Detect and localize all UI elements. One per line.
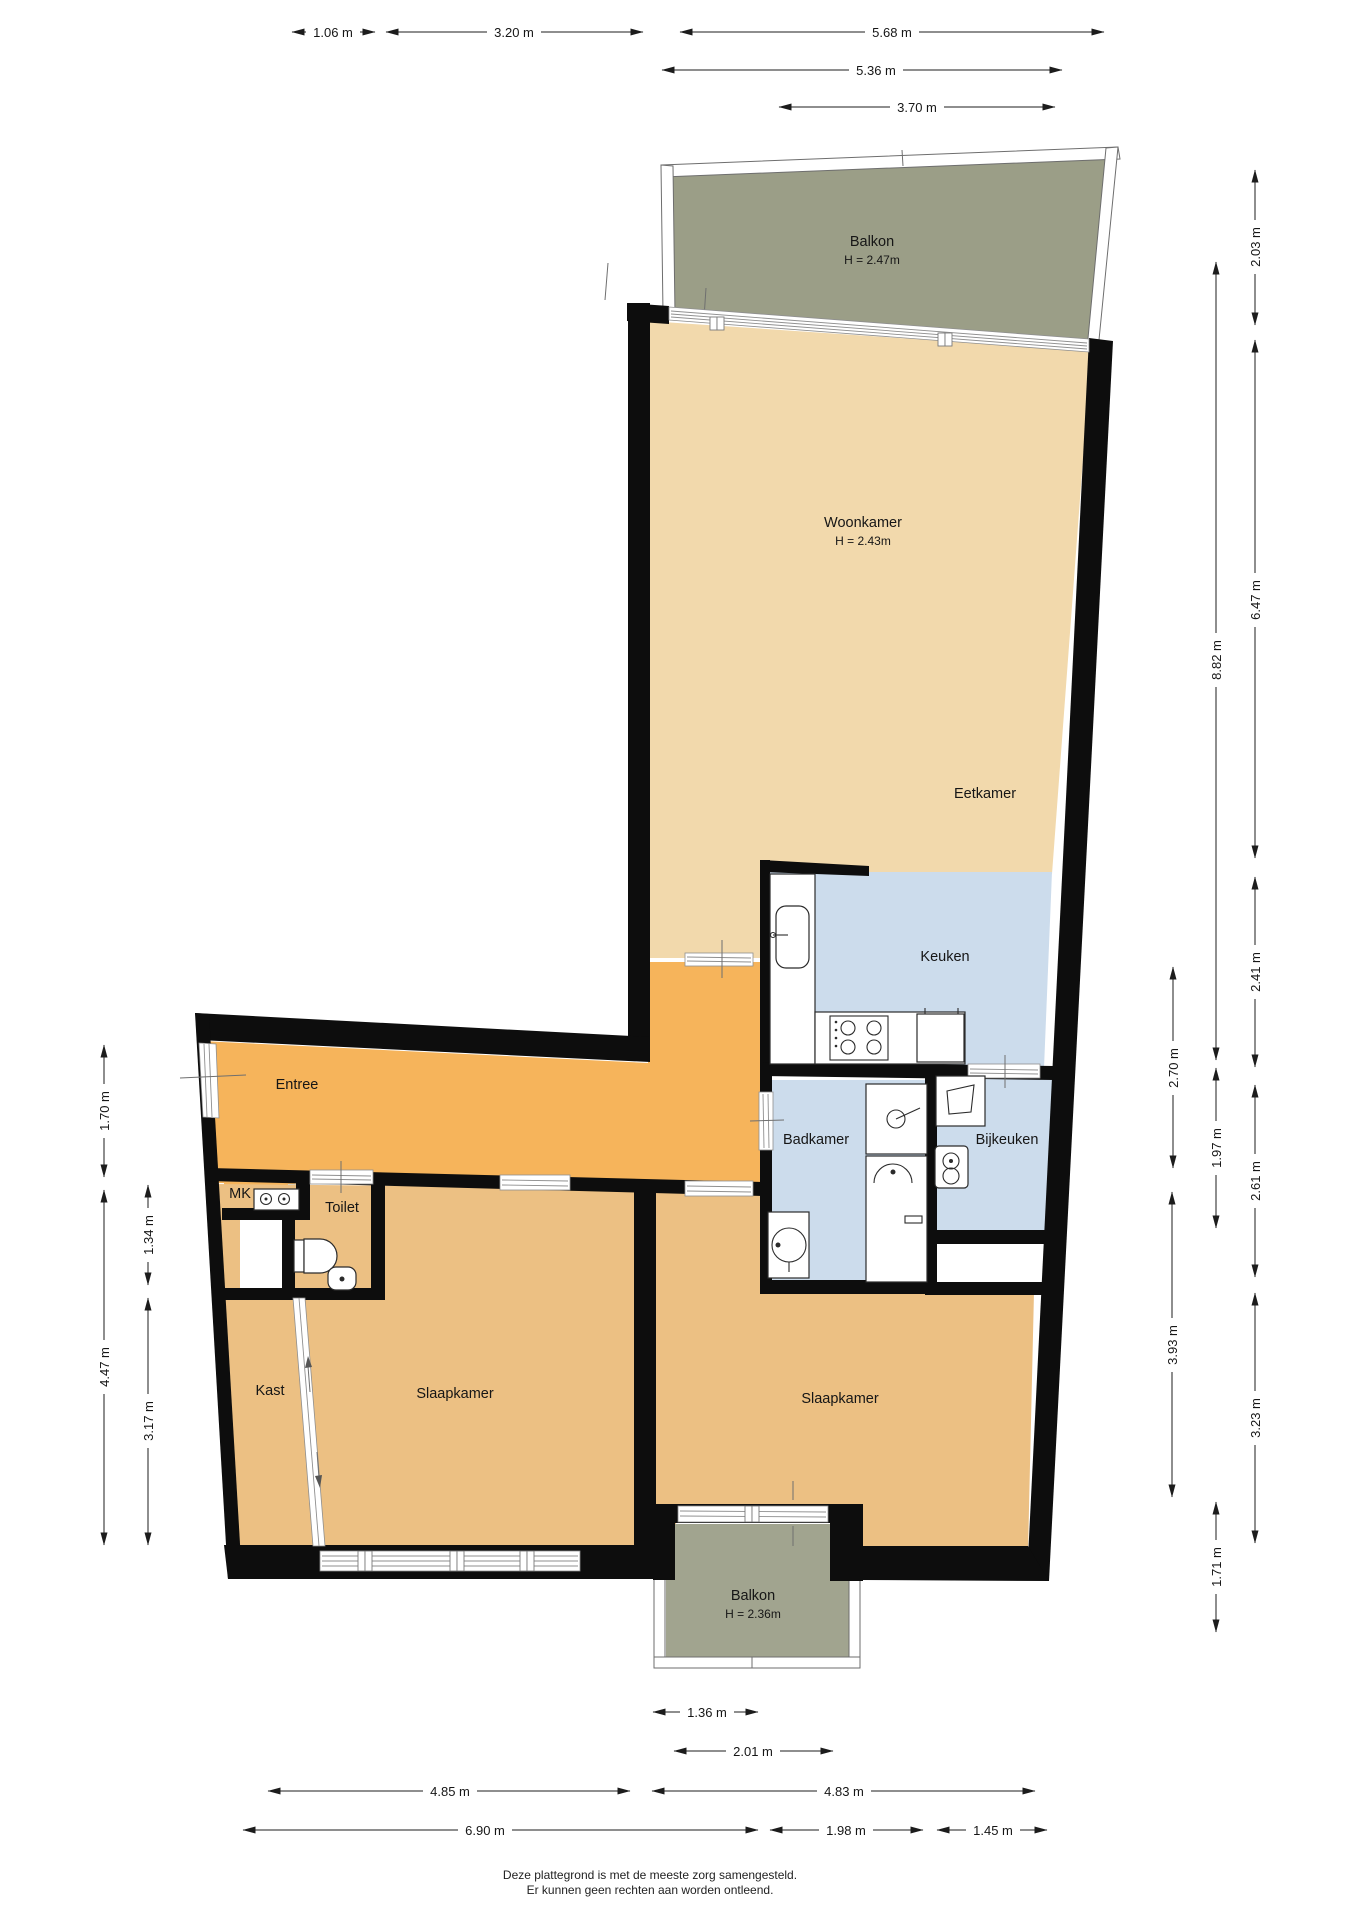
dim-top-3: 5.68 m xyxy=(872,25,912,40)
toilet-cistern-icon xyxy=(294,1240,304,1272)
kitchen-counter xyxy=(770,874,815,1064)
dim-left-3: 4.47 m xyxy=(97,1347,112,1387)
dim-bottom-2: 2.01 m xyxy=(733,1744,773,1759)
dim-right-6: 1.97 m xyxy=(1209,1128,1224,1168)
wall-slaapkamers-divider xyxy=(634,1182,656,1554)
dim-top-4: 5.36 m xyxy=(856,63,896,78)
dim-right-4: 2.41 m xyxy=(1248,952,1263,992)
label-woonkamer: Woonkamer xyxy=(824,515,902,531)
dim-left-1: 1.70 m xyxy=(97,1091,112,1131)
label-eetkamer: Eetkamer xyxy=(954,786,1016,802)
wall-south-right xyxy=(858,1546,1049,1581)
floorplan-page: Balkon H = 2.47m Woonkamer H = 2.43m Eet… xyxy=(0,0,1358,1920)
label-slaapkamer-rechts: Slaapkamer xyxy=(801,1391,879,1407)
dim-left-4: 3.17 m xyxy=(141,1401,156,1441)
label-woonkamer-height: H = 2.43m xyxy=(835,534,891,548)
dimensions-top: 1.06 m 3.20 m 5.68 m 5.36 m 3.70 m xyxy=(292,24,1104,115)
dim-bottom-1: 1.36 m xyxy=(687,1705,727,1720)
dim-right-10: 1.71 m xyxy=(1209,1547,1224,1587)
dim-bottom-3: 4.85 m xyxy=(430,1784,470,1799)
wall-toilet-west xyxy=(282,1214,295,1300)
floorplan-canvas: Balkon H = 2.47m Woonkamer H = 2.43m Eet… xyxy=(0,0,1358,1920)
dimensions-left: 1.70 m 1.34 m 4.47 m 3.17 m xyxy=(96,1045,156,1545)
dim-bottom-4: 4.83 m xyxy=(824,1784,864,1799)
dim-right-9: 3.23 m xyxy=(1248,1398,1263,1438)
wall-woonkamer-west xyxy=(628,303,650,1056)
label-balkon-top-height: H = 2.47m xyxy=(844,253,900,267)
wall-toilet-east xyxy=(371,1180,385,1300)
dimensions-bottom: 1.36 m 2.01 m 4.85 m 4.83 m 6.90 m 1.98 … xyxy=(243,1704,1047,1838)
kitchen-sink-icon xyxy=(776,906,809,968)
slaapkamer-rechts-door xyxy=(685,1181,753,1196)
label-balkon-bottom: Balkon xyxy=(731,1588,775,1604)
label-balkon-bottom-height: H = 2.36m xyxy=(725,1607,781,1621)
room-woonkamer-eetkamer xyxy=(648,321,1091,958)
label-mk: MK xyxy=(229,1186,251,1202)
label-toilet: Toilet xyxy=(325,1200,359,1216)
label-slaapkamer-links: Slaapkamer xyxy=(416,1386,494,1402)
dim-left-2: 1.34 m xyxy=(141,1215,156,1255)
dim-top-1: 1.06 m xyxy=(313,25,353,40)
wall-balkon-block-left xyxy=(653,1504,675,1580)
dim-right-8: 3.93 m xyxy=(1165,1325,1180,1365)
slaapkamer-links-windows xyxy=(320,1551,580,1571)
label-balkon-top: Balkon xyxy=(850,234,894,250)
dimensions-right: 2.03 m 6.47 m 8.82 m 2.41 m 2.70 m 1.97 … xyxy=(1164,170,1263,1632)
wall-keuken-west xyxy=(760,860,770,1070)
dim-right-3: 8.82 m xyxy=(1209,640,1224,680)
room-entree-hal xyxy=(201,962,766,1186)
label-keuken: Keuken xyxy=(920,949,969,965)
wall-notch-south xyxy=(925,1282,1050,1295)
dim-bottom-7: 1.45 m xyxy=(973,1823,1013,1838)
dim-bottom-6: 1.98 m xyxy=(826,1823,866,1838)
shaft-void xyxy=(240,1214,284,1290)
slaapkamer-links-door xyxy=(500,1175,570,1190)
dim-right-7: 2.61 m xyxy=(1248,1161,1263,1201)
dim-right-5: 2.70 m xyxy=(1166,1048,1181,1088)
footer-disclaimer-line1: Deze plattegrond is met de meeste zorg s… xyxy=(503,1868,797,1882)
dim-right-1: 2.03 m xyxy=(1248,227,1263,267)
mk-fixtures xyxy=(254,1189,299,1210)
label-badkamer: Badkamer xyxy=(783,1132,849,1148)
dim-top-5: 3.70 m xyxy=(897,100,937,115)
wall-bijkeuken-south xyxy=(925,1230,1053,1244)
dishwasher-icon xyxy=(917,1014,964,1062)
laundry-sink-icon xyxy=(936,1076,985,1126)
dim-right-2: 6.47 m xyxy=(1248,580,1263,620)
label-entree: Entree xyxy=(276,1077,319,1093)
label-kast: Kast xyxy=(255,1383,284,1399)
boiler-icon xyxy=(935,1146,968,1188)
label-bijkeuken: Bijkeuken xyxy=(976,1132,1039,1148)
dim-top-2: 3.20 m xyxy=(494,25,534,40)
dim-bottom-5: 6.90 m xyxy=(465,1823,505,1838)
footer-disclaimer-line2: Er kunnen geen rechten aan worden ontlee… xyxy=(527,1883,774,1897)
